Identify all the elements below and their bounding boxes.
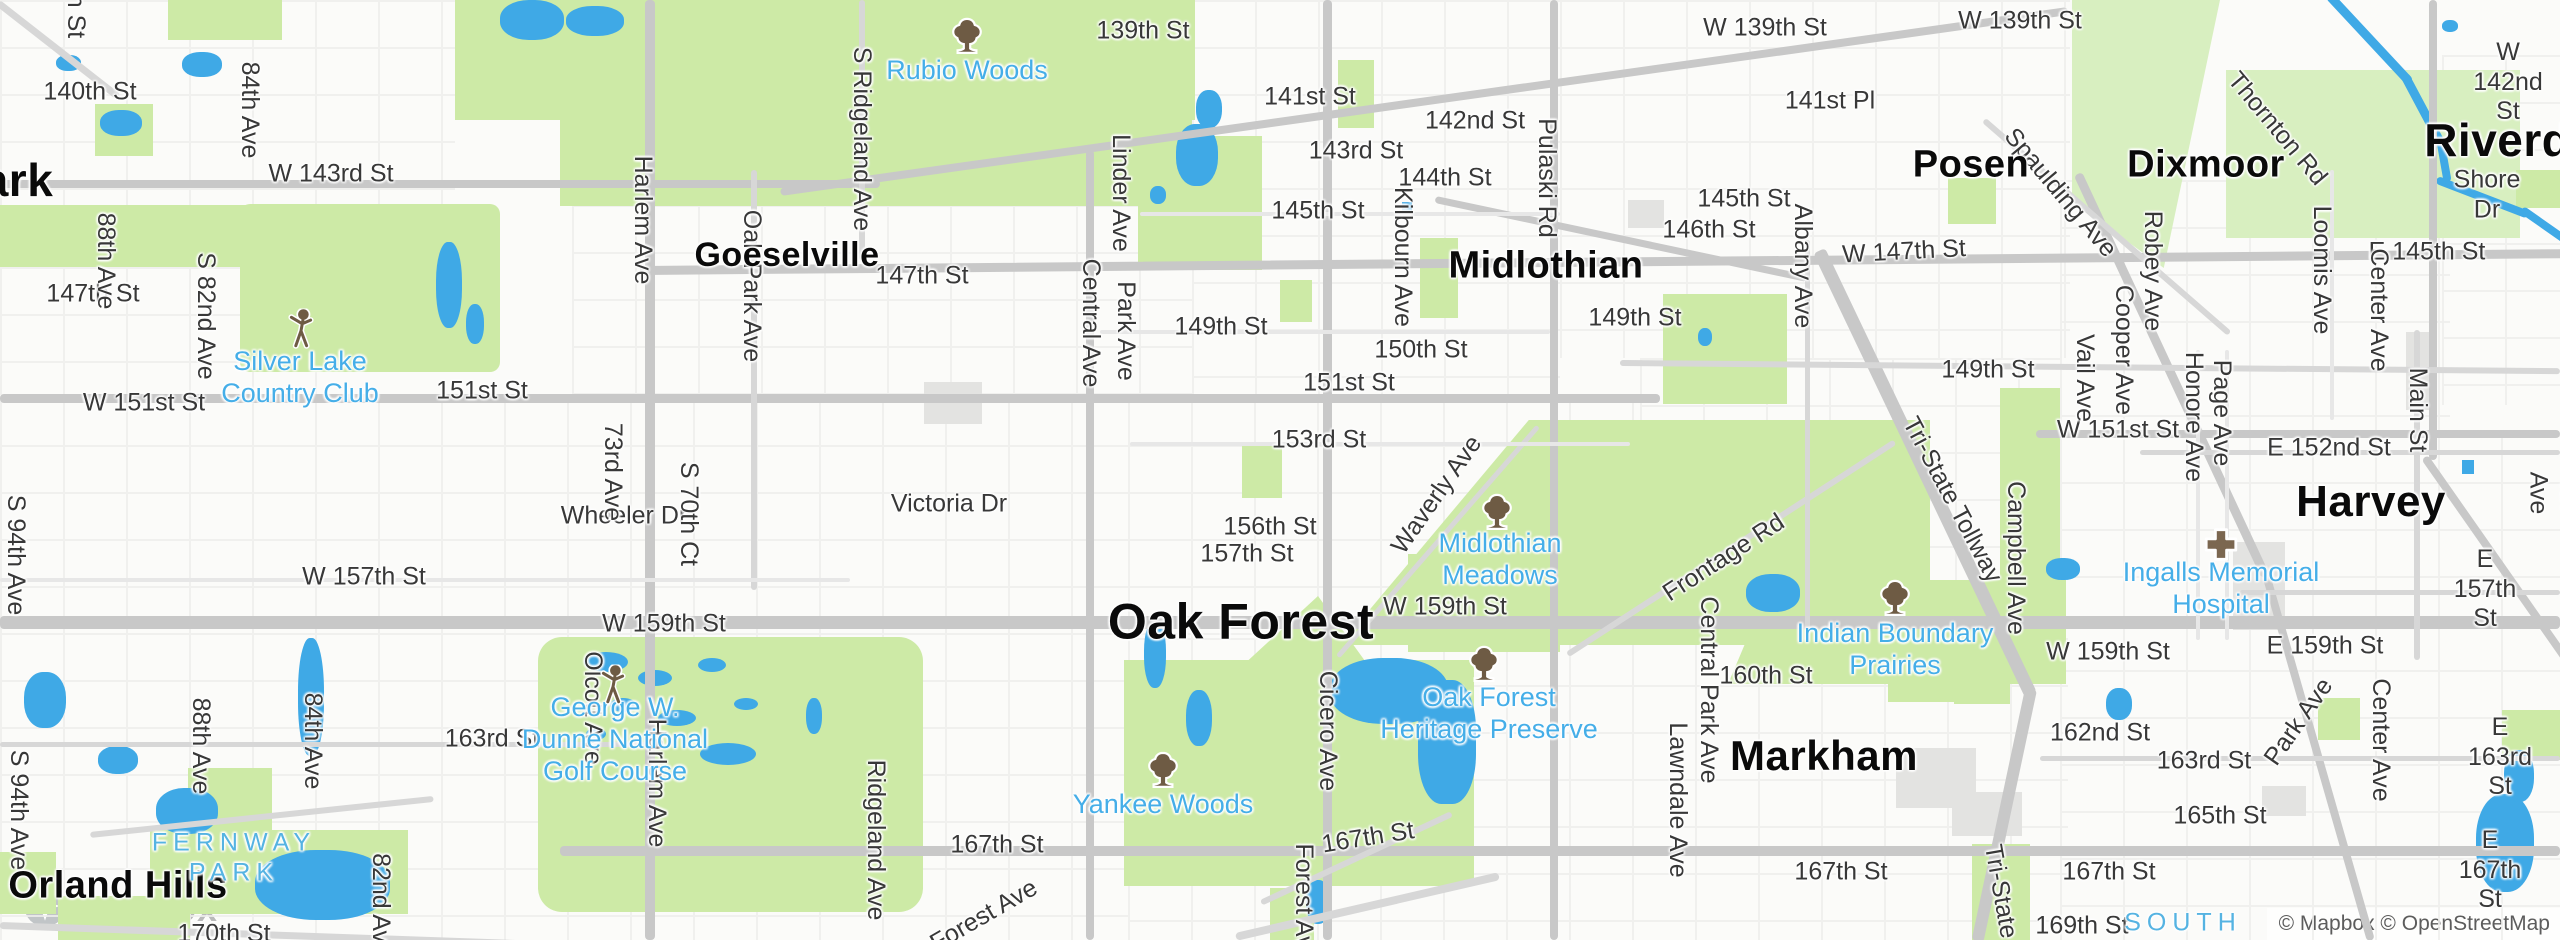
street-label: Forest Ave xyxy=(1288,843,1318,940)
street-label: 145th St xyxy=(1697,184,1790,214)
street-label: W 143rd St xyxy=(268,159,393,189)
street-label: Center Ave xyxy=(2363,248,2393,371)
street-label: 4th Ave xyxy=(2524,472,2560,515)
street-label: W 159th St xyxy=(2046,637,2170,667)
park-area xyxy=(168,0,282,40)
street-label: E 157th St xyxy=(2448,545,2523,634)
poi-label: Oak Forest Heritage Preserve xyxy=(1380,682,1598,746)
tree-icon xyxy=(1479,493,1515,540)
tree-icon xyxy=(1466,645,1502,692)
street-label: Kilbourn Ave xyxy=(1387,187,1417,327)
street-label: 146th St xyxy=(1662,215,1755,245)
street-label: Ridgeland Ave xyxy=(860,760,890,921)
water-area xyxy=(24,672,66,728)
water-area xyxy=(182,52,222,77)
hospital-icon xyxy=(2203,527,2239,568)
city-label: ark xyxy=(0,153,53,207)
city-label: Markham xyxy=(1730,731,1918,781)
map-canvas[interactable]: mapbox 140th StW 143rd St147th StW 151st… xyxy=(0,0,2560,940)
city-label: Goeselville xyxy=(694,235,879,275)
street-label: 141st St xyxy=(1264,82,1356,112)
street-label: 167th St xyxy=(1794,857,1887,887)
street-label: 162nd St xyxy=(2050,718,2150,748)
tree-icon xyxy=(1877,579,1913,626)
street-label: 165th St xyxy=(2173,801,2266,831)
street-label: Albany Ave xyxy=(1787,204,1817,329)
street-label: 151st St xyxy=(436,376,528,406)
road xyxy=(1130,442,1630,446)
street-label: 139th St xyxy=(1096,16,1189,46)
water-area xyxy=(466,304,484,344)
city-label: Dixmoor xyxy=(2127,143,2285,188)
street-label: Cicero Ave xyxy=(1312,671,1342,791)
street-label: 149th St xyxy=(1588,303,1681,333)
city-label: Midlothian xyxy=(1449,244,1644,289)
street-label: 88th Ave xyxy=(185,698,215,795)
water-area xyxy=(734,698,758,710)
street-label: 73rd Ave xyxy=(597,423,627,521)
city-label: Oak Forest xyxy=(1108,593,1374,652)
street-label: 147th St xyxy=(875,261,968,291)
tree-icon xyxy=(949,17,985,64)
water-area xyxy=(500,0,564,40)
street-label: W 139th St xyxy=(1703,13,1827,43)
street-label: E 159th St xyxy=(2267,631,2384,661)
street-label: W 159th St xyxy=(602,609,726,639)
water-area xyxy=(2106,688,2132,720)
street-label: Park Ave xyxy=(1110,281,1140,381)
street-label: W 139th St xyxy=(1958,6,2082,36)
street-label: 170th St xyxy=(177,919,270,940)
water-area xyxy=(98,746,138,774)
area-label: SOUTH HARVEY xyxy=(2114,909,2252,940)
street-label: Central Ave xyxy=(1075,259,1105,388)
park-area xyxy=(1280,280,1312,322)
street-label: Vail Ave xyxy=(2069,334,2099,422)
water-area xyxy=(2462,460,2474,474)
street-label: 167th St xyxy=(2062,857,2155,887)
street-label: Honore Ave xyxy=(2178,352,2208,482)
street-label: 142nd St xyxy=(1425,106,1525,136)
street-label: W 151st St xyxy=(83,388,205,418)
street-label: E 167th St xyxy=(2455,826,2525,915)
street-label: Lawndale Ave xyxy=(1662,722,1692,877)
water-area xyxy=(1698,328,1712,346)
water-area xyxy=(1186,690,1212,746)
street-label: S 94th Ave xyxy=(0,495,30,615)
area-label: FERNWAY PARK xyxy=(152,829,316,888)
street-label: Robey Ave xyxy=(2137,211,2167,331)
street-label: 143rd St xyxy=(1309,136,1404,166)
water-area xyxy=(806,698,822,734)
street-label: S 82nd Ave xyxy=(190,252,220,379)
water-area xyxy=(700,743,756,765)
building xyxy=(2262,786,2306,816)
street-label: Harlem Ave xyxy=(627,156,657,285)
golfer-icon xyxy=(597,665,627,712)
street-label: 163rd St xyxy=(2157,746,2252,776)
street-label: 151st St xyxy=(1303,368,1395,398)
street-label: W 159th St xyxy=(1383,592,1507,622)
park-area xyxy=(1614,492,1732,544)
street-label: 153rd St xyxy=(1272,425,1367,455)
street-label: S 70th Ct xyxy=(673,462,703,566)
water-area xyxy=(436,242,462,328)
water-area xyxy=(2046,558,2080,580)
street-label: Oak Park Ave xyxy=(736,210,766,362)
building xyxy=(924,382,982,424)
street-label: E 163rd St xyxy=(2468,713,2532,802)
water-area xyxy=(1196,90,1222,128)
street-label: Center Ave xyxy=(2365,678,2395,801)
road xyxy=(1100,330,1550,334)
street-label: W 157th St xyxy=(302,562,426,592)
street-label: Campbell Ave xyxy=(2000,481,2030,635)
water-area xyxy=(638,670,672,686)
street-label: 141st Pl xyxy=(1785,86,1875,116)
street-label: Central Park Ave xyxy=(1693,596,1723,783)
street-label: 84th Ave xyxy=(234,62,264,159)
street-label: 167th St xyxy=(950,830,1043,860)
golfer-icon xyxy=(285,309,315,356)
street-label: h St xyxy=(60,0,90,38)
street-label: Cooper Ave xyxy=(2108,285,2138,415)
building xyxy=(1628,200,1664,228)
city-label: Harvey xyxy=(2296,476,2446,528)
street-label: 84th Ave xyxy=(297,693,327,790)
street-label: Victoria Dr xyxy=(891,489,1007,519)
street-label: E 152nd St xyxy=(2267,433,2391,463)
city-label: Riverdale xyxy=(2424,113,2560,167)
street-label: Main St xyxy=(2402,368,2432,453)
road xyxy=(0,180,880,188)
park-area xyxy=(1663,294,1787,404)
street-label: Linder Ave xyxy=(1105,134,1135,252)
street-label: Loomis Ave xyxy=(2306,206,2336,335)
poi-label: Indian Boundary Prairies xyxy=(1797,618,1994,682)
water-area xyxy=(2442,20,2458,32)
city-label: Posen xyxy=(1913,143,2030,188)
water-area xyxy=(566,6,624,36)
street-label: 88th Ave xyxy=(90,213,120,310)
street-label: 157th St xyxy=(1200,539,1293,569)
water-area xyxy=(698,658,726,672)
water-area xyxy=(100,110,142,136)
street-label: 156th St xyxy=(1223,512,1316,542)
street-label: 145th St xyxy=(1271,196,1364,226)
street-label: S Ridgeland Ave xyxy=(846,47,876,231)
street-label: 140th St xyxy=(43,77,136,107)
street-label: 149th St xyxy=(1941,355,2034,385)
street-label: Page Ave xyxy=(2206,360,2236,467)
street-label: 82nd Ave xyxy=(365,853,395,940)
street-label: S 94th Ave xyxy=(3,750,33,870)
water-area xyxy=(1150,186,1166,204)
street-label: 150th St xyxy=(1374,335,1467,365)
street-label: 149th St xyxy=(1174,312,1267,342)
tree-icon xyxy=(1145,751,1181,798)
street-label: Shore Dr xyxy=(2451,166,2524,225)
street-label: Pulaski Rd xyxy=(1531,118,1561,238)
poi-label: Silver Lake Country Club xyxy=(221,346,379,410)
water-area xyxy=(1746,574,1800,612)
